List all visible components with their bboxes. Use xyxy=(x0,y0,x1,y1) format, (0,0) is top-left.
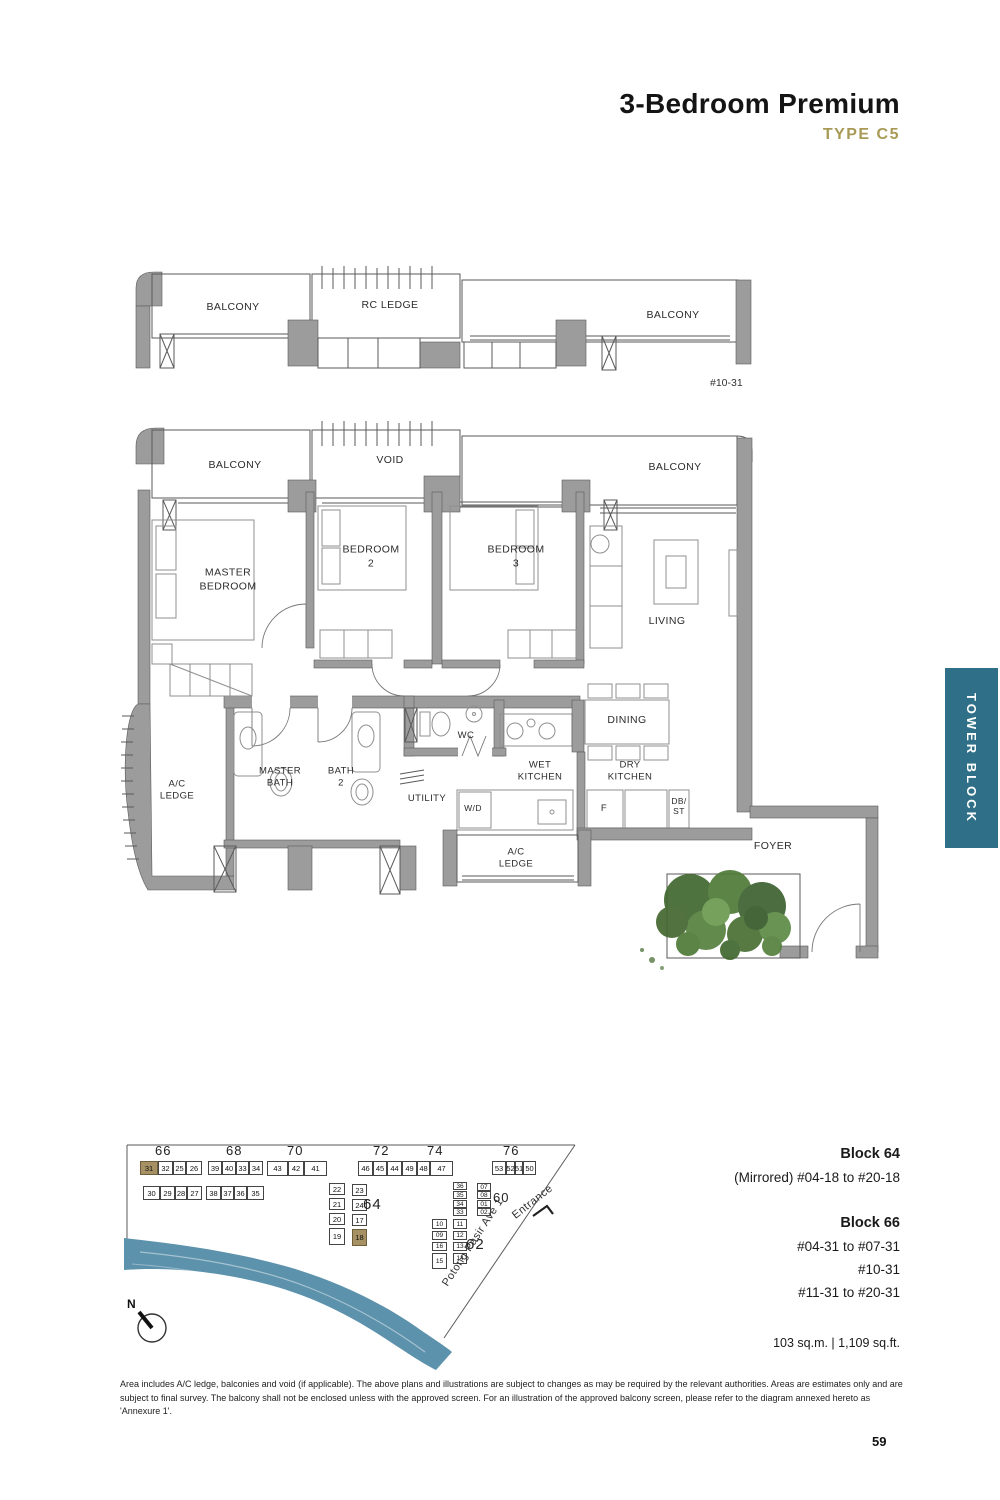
siteplan-unit-34: 34 xyxy=(453,1200,467,1208)
siteplan-block-label-68: 68 xyxy=(226,1143,242,1158)
entrance-arrow-icon xyxy=(533,1206,553,1216)
room-label-rc-ledge: RC LEDGE xyxy=(362,299,419,313)
room-label-balcony-left-upper: BALCONY xyxy=(207,301,260,315)
siteplan-unit-12: 12 xyxy=(453,1231,467,1240)
bath-fixtures-icon xyxy=(234,712,380,805)
siteplan-unit-51: 51 xyxy=(515,1161,523,1175)
main-plan-linework xyxy=(121,421,878,970)
plant-icon xyxy=(591,535,609,553)
siteplan-unit-09: 09 xyxy=(432,1231,447,1240)
room-label-balcony-right-upper: BALCONY xyxy=(647,309,700,323)
siteplan-block-label-74: 74 xyxy=(427,1143,443,1158)
siteplan-unit-25: 25 xyxy=(173,1161,186,1175)
siteplan-unit-53: 53 xyxy=(492,1161,506,1175)
room-label-bedroom2: BEDROOM 2 xyxy=(342,543,399,570)
block66-floors-2: #10-31 xyxy=(734,1262,900,1277)
siteplan-unit-20: 20 xyxy=(329,1213,345,1225)
room-label-wd: W/D xyxy=(464,804,482,814)
tv-console-icon xyxy=(729,550,737,616)
room-label-fridge: F xyxy=(601,803,607,815)
coffee-table-icon xyxy=(654,540,698,604)
compass-icon xyxy=(138,1312,166,1342)
siteplan-unit-46: 46 xyxy=(358,1161,373,1176)
river xyxy=(124,1238,452,1370)
siteplan-unit-44: 44 xyxy=(387,1161,402,1176)
sink-icon xyxy=(538,800,566,824)
siteplan-unit-33: 33 xyxy=(236,1161,249,1175)
siteplan-unit-35: 35 xyxy=(247,1186,264,1200)
siteplan-block-label-66: 66 xyxy=(155,1143,171,1158)
room-label-balcony-right: BALCONY xyxy=(649,461,702,475)
block66-floors-1: #04-31 to #07-31 xyxy=(734,1239,900,1254)
unit-area: 103 sq.m. | 1,109 sq.ft. xyxy=(734,1336,900,1350)
siteplan-unit-18: 18 xyxy=(352,1229,367,1246)
siteplan-unit-45: 45 xyxy=(373,1161,387,1176)
siteplan-unit-28: 28 xyxy=(175,1186,187,1200)
siteplan-unit-07: 07 xyxy=(477,1183,491,1191)
floor-tag: #10-31 xyxy=(710,377,743,389)
room-label-void: VOID xyxy=(376,454,403,468)
siteplan-unit-35: 35 xyxy=(453,1191,467,1199)
siteplan-block-label-76: 76 xyxy=(503,1143,519,1158)
room-label-living: LIVING xyxy=(649,615,686,629)
siteplan-block-label-70: 70 xyxy=(287,1143,303,1158)
room-label-ac-ledge-bottom: A/C LEDGE xyxy=(499,847,533,872)
room-label-ac-ledge-left: A/C LEDGE xyxy=(160,779,194,804)
room-label-utility: UTILITY xyxy=(408,793,446,805)
siteplan-unit-08: 08 xyxy=(477,1191,491,1199)
room-label-balcony-left: BALCONY xyxy=(209,459,262,473)
siteplan-block-label-72: 72 xyxy=(373,1143,389,1158)
room-label-master-bath: MASTER BATH xyxy=(259,766,301,791)
room-label-bath2: BATH 2 xyxy=(328,766,354,791)
siteplan-unit-26: 26 xyxy=(186,1161,202,1175)
tower-block-tab: TOWER BLOCK xyxy=(945,668,998,848)
siteplan-unit-40: 40 xyxy=(222,1161,236,1175)
siteplan-unit-22: 22 xyxy=(329,1183,345,1195)
block64-floors: (Mirrored) #04-18 to #20-18 xyxy=(734,1170,900,1185)
siteplan-unit-52: 52 xyxy=(506,1161,515,1175)
siteplan-unit-19: 19 xyxy=(329,1228,345,1245)
plants xyxy=(640,870,791,970)
block64-title: Block 64 xyxy=(734,1146,900,1162)
siteplan-unit-48: 48 xyxy=(417,1161,430,1176)
siteplan-unit-23: 23 xyxy=(352,1184,367,1196)
room-label-dining: DINING xyxy=(607,714,646,728)
siteplan-unit-29: 29 xyxy=(160,1186,175,1200)
siteplan-unit-21: 21 xyxy=(329,1198,345,1210)
room-label-wet-kitchen: WET KITCHEN xyxy=(518,760,563,785)
siteplan-unit-16: 16 xyxy=(432,1242,447,1251)
north-label: N xyxy=(127,1297,136,1311)
siteplan-unit-11: 11 xyxy=(453,1219,467,1229)
unit-info-block: Block 64 (Mirrored) #04-18 to #20-18 Blo… xyxy=(734,1146,900,1350)
sofa-icon xyxy=(590,526,622,648)
siteplan-block-label-64: 64 xyxy=(363,1196,382,1213)
siteplan-unit-10: 10 xyxy=(432,1219,447,1229)
block66-floors-3: #11-31 to #20-31 xyxy=(734,1285,900,1300)
room-label-bedroom3: BEDROOM 3 xyxy=(487,543,544,570)
siteplan-unit-47: 47 xyxy=(430,1161,453,1176)
siteplan-unit-39: 39 xyxy=(208,1161,222,1175)
siteplan-unit-30: 30 xyxy=(143,1186,160,1200)
page-number: 59 xyxy=(872,1434,886,1449)
siteplan-unit-49: 49 xyxy=(402,1161,417,1176)
louvre-x-icon xyxy=(160,334,616,370)
room-label-foyer: FOYER xyxy=(754,840,792,854)
basin-icon xyxy=(466,706,482,722)
room-label-wc: WC xyxy=(458,730,475,742)
siteplan-unit-27: 27 xyxy=(187,1186,202,1200)
toilet-icon xyxy=(420,712,450,736)
siteplan-unit-36: 36 xyxy=(234,1186,247,1200)
siteplan-unit-37: 37 xyxy=(221,1186,234,1200)
disclaimer-text: Area includes A/C ledge, balconies and v… xyxy=(120,1378,904,1419)
siteplan-unit-50: 50 xyxy=(523,1161,536,1175)
page-header: 3-Bedroom Premium TYPE C5 xyxy=(620,88,901,144)
page-subtitle: TYPE C5 xyxy=(620,126,901,144)
block66-title: Block 66 xyxy=(734,1215,900,1231)
siteplan-unit-34: 34 xyxy=(249,1161,263,1175)
siteplan-unit-42: 42 xyxy=(288,1161,304,1176)
siteplan-unit-17: 17 xyxy=(352,1214,367,1226)
siteplan-unit-32: 32 xyxy=(158,1161,173,1175)
siteplan-unit-41: 41 xyxy=(304,1161,327,1176)
siteplan-unit-15: 15 xyxy=(432,1253,447,1269)
room-label-master-bedroom: MASTER BEDROOM xyxy=(199,566,256,593)
room-label-db-st: DB/ ST xyxy=(671,797,686,817)
siteplan-unit-31: 31 xyxy=(140,1161,158,1175)
brochure-page: 3-Bedroom Premium TYPE C5 BALCONY RC LED… xyxy=(0,0,1000,1500)
room-label-dry-kitchen: DRY KITCHEN xyxy=(608,760,653,785)
tower-block-label: TOWER BLOCK xyxy=(964,693,979,824)
siteplan-unit-38: 38 xyxy=(206,1186,221,1200)
siteplan-unit-36: 36 xyxy=(453,1182,467,1190)
hob-icon xyxy=(507,719,555,739)
page-title: 3-Bedroom Premium xyxy=(620,88,901,120)
siteplan-unit-43: 43 xyxy=(267,1161,288,1176)
siteplan-unit-33: 33 xyxy=(453,1208,467,1216)
